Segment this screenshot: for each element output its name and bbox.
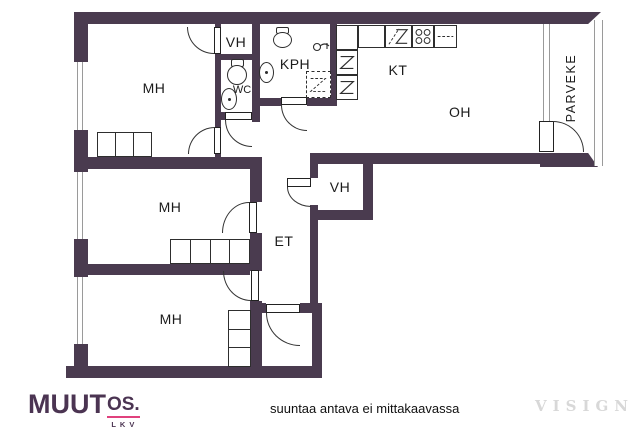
window-pane-line: [77, 62, 78, 130]
window-mh-bottom: [74, 277, 88, 344]
window-pane-line: [82, 277, 83, 344]
wall: [310, 205, 318, 313]
logo-text-lkv: LKV: [107, 420, 140, 427]
toilet-icon-kph: [272, 26, 294, 49]
door-swing-balcony: [553, 121, 584, 152]
window-mh-middle: [74, 172, 88, 239]
toilet-bowl: [227, 65, 247, 85]
toilet-icon-wc: [226, 59, 248, 87]
wall: [74, 12, 555, 24]
freezer-icon: [336, 75, 358, 100]
window-pane-line: [82, 62, 83, 130]
wall: [250, 301, 262, 366]
front-door: [266, 304, 300, 313]
kitchen-counter: [358, 25, 385, 48]
faucet-icon-kph: [311, 39, 331, 54]
balcony-door: [539, 121, 554, 152]
room-label-vh-top: VH: [226, 34, 246, 50]
room-label-kt: KT: [389, 62, 408, 78]
kitchen-counter-reserved: [434, 25, 457, 48]
wall: [252, 98, 281, 106]
room-label-oh: OH: [449, 104, 471, 120]
room-label-et: ET: [275, 233, 294, 249]
wall: [74, 157, 262, 169]
window-pane-line: [543, 24, 544, 122]
door-swing-wc: [225, 120, 252, 147]
visign-watermark: VISIGN: [535, 397, 634, 415]
logo-text-main: MUUT: [28, 391, 106, 418]
room-label-kph: KPH: [280, 56, 310, 72]
fridge-icon: [336, 50, 358, 75]
wardrobe-mh-middle: [170, 239, 250, 264]
door-kph: [281, 97, 307, 105]
room-label-mh-top: MH: [143, 80, 166, 96]
logo-suffix-block: OS. LKV: [107, 395, 140, 427]
room-label-mh-middle: MH: [159, 199, 182, 215]
wall: [74, 12, 88, 62]
door-vh-top: [214, 27, 221, 54]
window-pane-line: [82, 172, 83, 239]
door-swing-mh-middle: [222, 202, 249, 233]
room-label-wc: WC: [233, 84, 251, 96]
room-label-mh-bottom: MH: [160, 311, 183, 327]
door-mh-bottom: [251, 270, 259, 301]
door-wc: [225, 112, 252, 120]
window-pane-line: [549, 24, 550, 122]
balcony-wall-bottom: [540, 153, 598, 167]
wall: [312, 313, 322, 366]
door-swing-mh-bottom: [223, 271, 251, 301]
room-label-parveke: PARVEKE: [564, 54, 578, 122]
door-mh-top: [214, 127, 221, 154]
wardrobe-mh-top: [97, 132, 152, 157]
balcony-railing: [594, 20, 603, 166]
wall: [215, 112, 225, 120]
wall: [367, 153, 555, 164]
door-swing-mh-top: [188, 127, 215, 154]
sink-icon-kph: [259, 62, 274, 83]
wall: [250, 233, 262, 264]
disclaimer-text: suuntaa antava ei mittakaavassa: [270, 401, 459, 416]
floor-plan: MH MH MH VH WC KPH KT OH ET VH PARVEKE M…: [0, 0, 640, 427]
wardrobe-mh-bottom: [228, 310, 251, 367]
door-vh-middle: [287, 178, 311, 187]
room-label-vh-middle: VH: [330, 179, 350, 195]
kitchen-tall-cabinet: [336, 25, 358, 50]
toilet-bowl: [273, 32, 292, 48]
wall: [66, 366, 322, 378]
door-swing-vh-top: [187, 27, 214, 54]
door-swing-vh-middle: [287, 187, 311, 207]
wall: [310, 210, 373, 220]
kitchen-sink-dishwasher-icon: [385, 25, 412, 48]
wall: [310, 164, 318, 178]
door-swing-front: [266, 313, 300, 346]
window-pane-line: [77, 277, 78, 344]
window-pane-line: [77, 172, 78, 239]
stove-icon: [412, 25, 434, 48]
washing-machine-reservation: [306, 71, 331, 98]
wall: [310, 153, 373, 164]
door-swing-kph: [281, 105, 307, 131]
wall: [250, 169, 262, 202]
wall: [300, 303, 322, 313]
muutos-logo: MUUT OS. LKV: [28, 391, 140, 427]
door-mh-middle: [249, 202, 257, 233]
logo-text-suffix: OS.: [107, 395, 140, 418]
window-mh-top: [74, 62, 88, 130]
window-oh-balcony: [540, 24, 554, 122]
